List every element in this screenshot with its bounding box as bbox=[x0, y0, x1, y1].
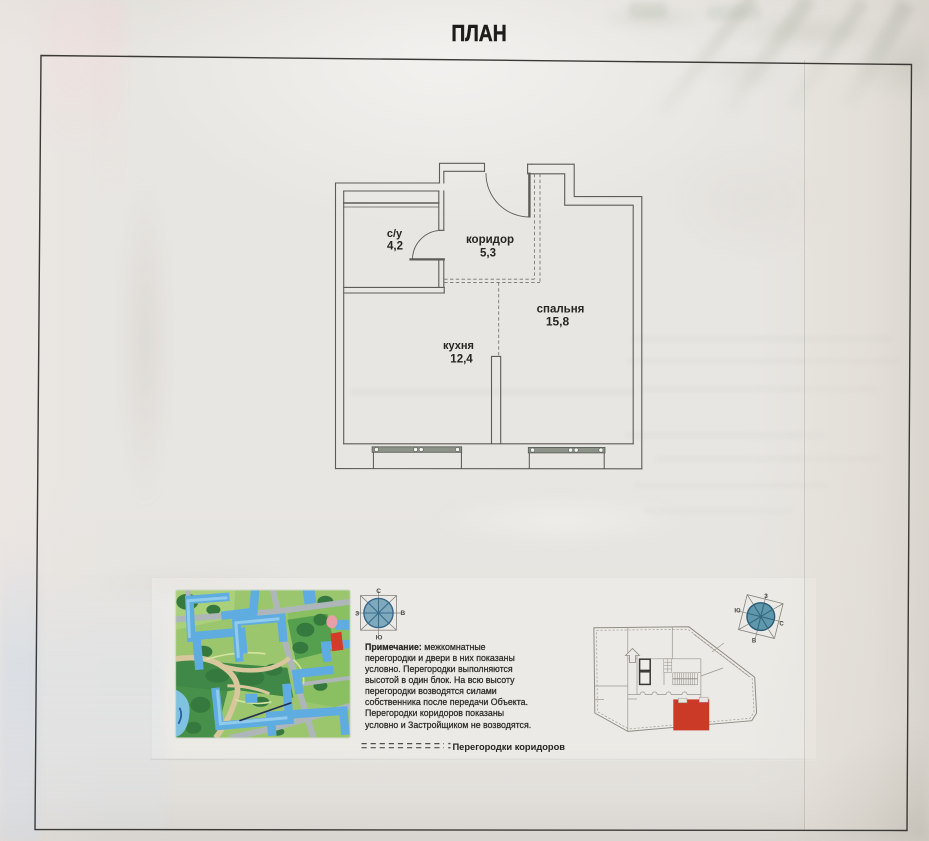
svg-text:Ю: Ю bbox=[376, 635, 383, 642]
svg-text:З: З bbox=[764, 594, 768, 600]
svg-text:коридор: коридор bbox=[466, 234, 514, 246]
svg-text:В: В bbox=[752, 639, 757, 645]
svg-text:5,3: 5,3 bbox=[480, 248, 496, 260]
svg-text:4,2: 4,2 bbox=[387, 241, 403, 253]
svg-text:С: С bbox=[376, 588, 381, 595]
svg-text:Ю: Ю bbox=[734, 609, 740, 615]
svg-text:12,4: 12,4 bbox=[450, 354, 473, 366]
svg-text:15,8: 15,8 bbox=[546, 315, 570, 329]
svg-text:В: В bbox=[400, 610, 405, 617]
svg-text:с/у: с/у bbox=[387, 228, 403, 240]
svg-text:С: С bbox=[779, 622, 784, 628]
svg-text:кухня: кухня bbox=[443, 340, 474, 352]
svg-text:З: З bbox=[355, 611, 359, 618]
